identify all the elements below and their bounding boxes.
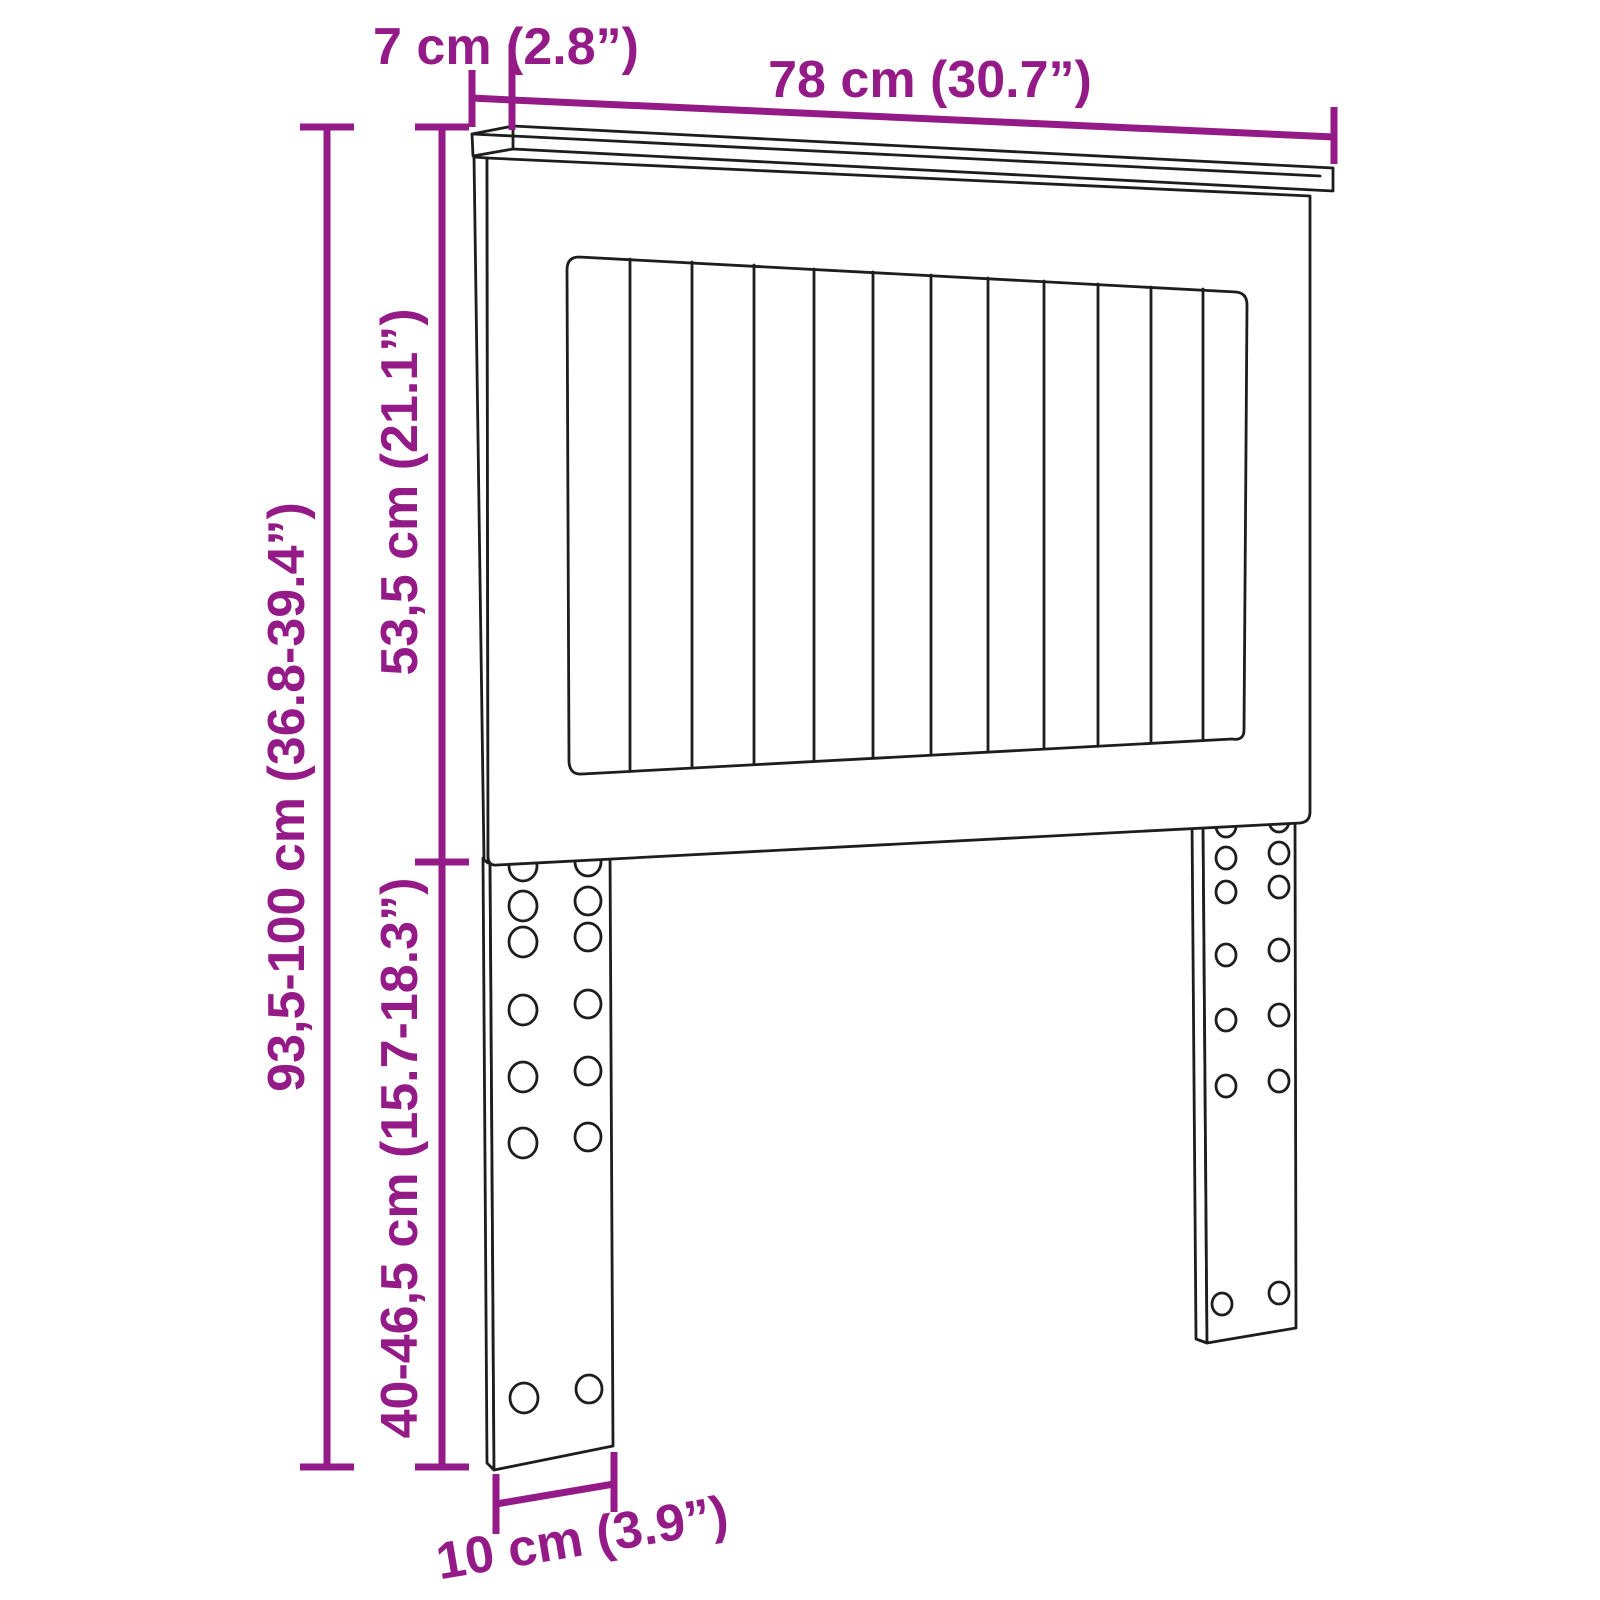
headboard-diagram: 7 cm (2.8”) 78 cm (30.7”) 93,5-100 cm (3…	[0, 0, 1600, 1600]
screw-hole	[1216, 847, 1236, 869]
screw-hole	[509, 927, 537, 957]
diagram-canvas: 7 cm (2.8”) 78 cm (30.7”) 93,5-100 cm (3…	[0, 0, 1600, 1600]
headboard-panel	[474, 157, 1310, 865]
screw-hole	[1216, 881, 1236, 903]
dimension-label-headboard-height: 53,5 cm (21.1”)	[371, 308, 429, 675]
screw-hole	[575, 887, 601, 915]
headboard-drawing	[472, 126, 1333, 1470]
dimension-line-top-depth	[472, 70, 512, 127]
screw-hole	[1216, 1075, 1236, 1097]
screw-hole	[575, 1057, 601, 1085]
screw-hole	[509, 995, 537, 1025]
screw-hole	[1269, 876, 1289, 898]
dimension-label-top-width: 78 cm (30.7”)	[768, 51, 1092, 109]
screw-hole	[509, 1062, 537, 1092]
panel-front-face	[487, 158, 1310, 865]
screw-hole	[1212, 1293, 1232, 1315]
screw-hole	[1269, 1004, 1289, 1026]
screw-hole	[510, 1383, 538, 1413]
screw-hole	[1269, 939, 1289, 961]
dimension-label-top-depth: 7 cm (2.8”)	[373, 18, 639, 76]
screw-hole	[1269, 842, 1289, 864]
dimension-label-leg-width: 10 cm (3.9”)	[432, 1485, 732, 1591]
screw-hole	[1269, 1282, 1289, 1304]
dimension-label-leg-height: 40-46,5 cm (15.7-18.3”)	[371, 878, 429, 1439]
left-leg	[483, 848, 613, 1470]
screw-hole	[1269, 1070, 1289, 1092]
screw-hole	[576, 1375, 602, 1403]
screw-hole	[1216, 944, 1236, 966]
right-leg	[1192, 810, 1296, 1343]
screw-hole	[1216, 1009, 1236, 1031]
screw-hole	[509, 891, 537, 921]
screw-hole	[509, 1128, 537, 1158]
dimension-label-total-height: 93,5-100 cm (36.8-39.4”)	[258, 502, 316, 1092]
screw-hole	[575, 923, 601, 951]
screw-hole	[575, 990, 601, 1018]
screw-hole	[575, 1123, 601, 1151]
